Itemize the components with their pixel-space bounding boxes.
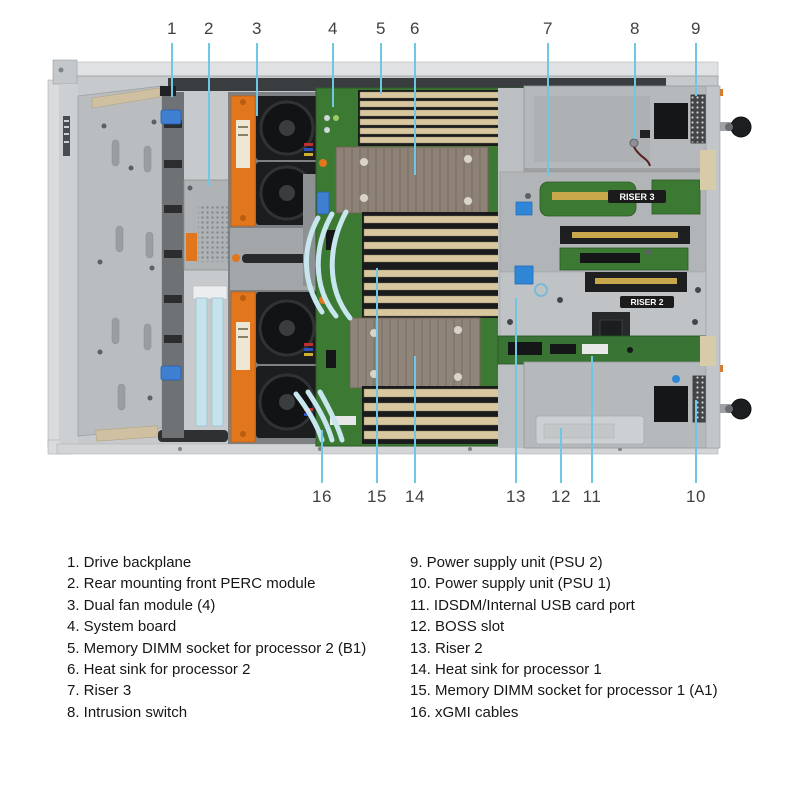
legend-right-column: 9. Power supply unit (PSU 2)10. Power su… (410, 552, 780, 723)
legend-item: 14. Heat sink for processor 1 (410, 659, 780, 680)
callout-number-16: 16 (312, 488, 332, 506)
legend-item: 2. Rear mounting front PERC module (67, 573, 397, 594)
callout-number-14: 14 (405, 488, 425, 506)
leader-line-4 (332, 43, 334, 107)
drive-backplane (160, 86, 184, 438)
legend-item: 12. BOSS slot (410, 616, 780, 637)
callout-number-7: 7 (543, 20, 553, 38)
legend-item: 16. xGMI cables (410, 702, 780, 723)
psu1-handle-knob (731, 399, 751, 419)
leader-line-10 (695, 400, 697, 483)
riser-3: RISER 3 (500, 172, 706, 272)
callout-number-1: 1 (167, 20, 177, 38)
callout-number-6: 6 (410, 20, 420, 38)
legend-item: 13. Riser 2 (410, 638, 780, 659)
leader-line-13 (515, 298, 517, 483)
leader-line-8 (634, 43, 636, 139)
riser-3-label: RISER 3 (619, 192, 654, 202)
leader-line-1 (171, 43, 173, 97)
callout-number-10: 10 (686, 488, 706, 506)
leader-line-3 (256, 43, 258, 116)
legend-item: 3. Dual fan module (4) (67, 595, 397, 616)
legend-item: 1. Drive backplane (67, 552, 397, 573)
legend-item: 4. System board (67, 616, 397, 637)
server-diagram: RISER 3 RISER 2 (0, 0, 800, 800)
callout-number-3: 3 (252, 20, 262, 38)
callout-number-13: 13 (506, 488, 526, 506)
dimm-bank-bottom (362, 386, 510, 444)
perc-module (184, 180, 234, 270)
riser-2-label: RISER 2 (630, 297, 663, 307)
legend-item: 8. Intrusion switch (67, 702, 397, 723)
callout-number-9: 9 (691, 20, 701, 38)
idsdm-board (498, 336, 708, 364)
leader-line-2 (208, 43, 210, 186)
boss-slot (536, 416, 644, 444)
legend-item: 11. IDSDM/Internal USB card port (410, 595, 780, 616)
backplane-latch-bottom (161, 366, 181, 380)
callout-number-2: 2 (204, 20, 214, 38)
callout-number-12: 12 (551, 488, 571, 506)
leader-line-15 (376, 268, 378, 483)
callout-number-15: 15 (367, 488, 387, 506)
callout-number-4: 4 (328, 20, 338, 38)
backplane-latch-top (161, 110, 181, 124)
psu2-handle-knob (731, 117, 751, 137)
legend-item: 6. Heat sink for processor 2 (67, 659, 397, 680)
leader-line-9 (695, 43, 697, 96)
dimm-bank-middle (362, 212, 518, 318)
legend-left-column: 1. Drive backplane2. Rear mounting front… (67, 552, 397, 723)
leader-line-16 (321, 430, 323, 483)
system-board (316, 88, 524, 446)
callout-number-8: 8 (630, 20, 640, 38)
callout-number-11: 11 (583, 488, 602, 506)
callout-number-5: 5 (376, 20, 386, 38)
legend-item: 10. Power supply unit (PSU 1) (410, 573, 780, 594)
leader-line-14 (414, 356, 416, 483)
legend-item: 5. Memory DIMM socket for processor 2 (B… (67, 638, 397, 659)
leader-line-12 (560, 428, 562, 483)
legend-item: 15. Memory DIMM socket for processor 1 (… (410, 680, 780, 701)
legend-item: 9. Power supply unit (PSU 2) (410, 552, 780, 573)
leader-line-11 (591, 356, 593, 483)
leader-line-5 (380, 43, 382, 94)
heat-sink-processor-2 (336, 147, 488, 213)
legend-item: 7. Riser 3 (67, 680, 397, 701)
rear-section: RISER 3 RISER 2 (498, 86, 751, 448)
leader-line-6 (414, 43, 416, 175)
fan-bottom-2 (256, 366, 318, 438)
leader-line-7 (547, 43, 549, 176)
dimm-bank-top (358, 90, 516, 146)
